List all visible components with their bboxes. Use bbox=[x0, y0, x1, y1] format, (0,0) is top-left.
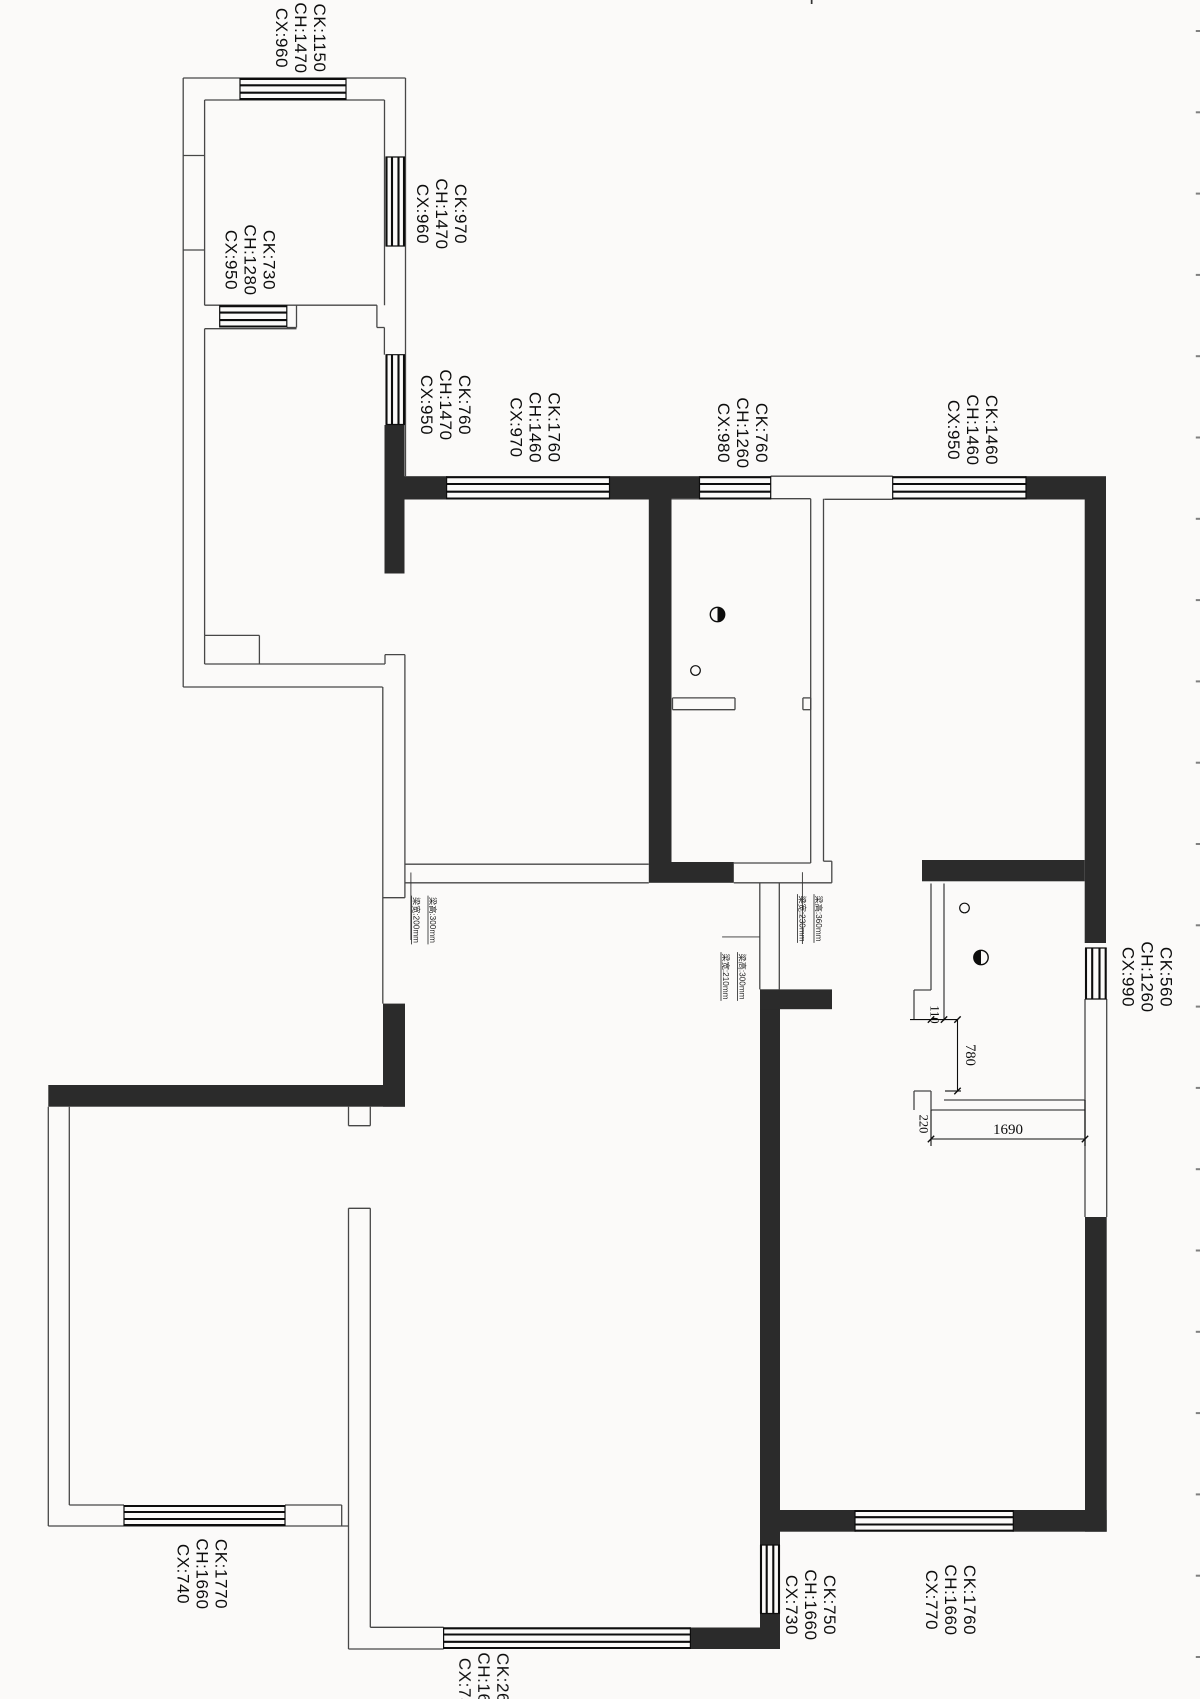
svg-text:CX:770: CX:770 bbox=[922, 1570, 941, 1630]
svg-text:CH:1260: CH:1260 bbox=[1138, 941, 1157, 1012]
svg-text:梁宽:210mm: 梁宽:210mm bbox=[721, 954, 731, 1000]
svg-text:CH:1660: CH:1660 bbox=[474, 1652, 493, 1699]
svg-text:1690: 1690 bbox=[993, 1122, 1023, 1138]
svg-text:CX:950: CX:950 bbox=[417, 375, 436, 435]
svg-text:CX:740: CX:740 bbox=[174, 1544, 193, 1604]
svg-text:CX:980: CX:980 bbox=[714, 403, 733, 463]
svg-text:CH:1260: CH:1260 bbox=[733, 397, 752, 468]
svg-text:CX:950: CX:950 bbox=[222, 230, 241, 290]
svg-text:CK:1760: CK:1760 bbox=[545, 392, 564, 462]
svg-text:CK:970: CK:970 bbox=[451, 184, 470, 244]
svg-text:CK:560: CK:560 bbox=[1157, 947, 1176, 1007]
svg-text:梁宽:230mm: 梁宽:230mm bbox=[798, 896, 808, 942]
svg-text:CX:730: CX:730 bbox=[782, 1575, 801, 1635]
svg-text:CX:950: CX:950 bbox=[944, 400, 963, 460]
svg-text:CK:760: CK:760 bbox=[752, 403, 771, 463]
svg-text:220: 220 bbox=[917, 1115, 931, 1134]
svg-text:CH:1470: CH:1470 bbox=[291, 2, 310, 73]
svg-text:780: 780 bbox=[962, 1044, 978, 1066]
svg-text:CH:1660: CH:1660 bbox=[941, 1564, 960, 1635]
svg-text:CK:750: CK:750 bbox=[820, 1575, 839, 1635]
svg-text:CK:730: CK:730 bbox=[260, 230, 279, 290]
svg-text:CH:1460: CH:1460 bbox=[963, 394, 982, 465]
svg-text:CK:1770: CK:1770 bbox=[212, 1539, 231, 1609]
svg-text:CX:990: CX:990 bbox=[1119, 947, 1138, 1007]
svg-text:CH:1460: CH:1460 bbox=[526, 392, 545, 463]
svg-text:梁高:300mm: 梁高:300mm bbox=[428, 897, 438, 943]
svg-text:CX:960: CX:960 bbox=[413, 184, 432, 244]
svg-text:CH:1470: CH:1470 bbox=[436, 369, 455, 440]
svg-text:CK:1150: CK:1150 bbox=[310, 3, 329, 72]
svg-text:110: 110 bbox=[928, 1005, 942, 1023]
svg-text:梁高:360mm: 梁高:360mm bbox=[814, 896, 824, 942]
svg-text:CH:1470: CH:1470 bbox=[432, 178, 451, 249]
svg-text:CX:960: CX:960 bbox=[272, 8, 291, 68]
svg-text:CH:1660: CH:1660 bbox=[801, 1569, 820, 1640]
svg-text:CX:970: CX:970 bbox=[507, 397, 526, 457]
svg-text:CH:1280: CH:1280 bbox=[241, 224, 260, 295]
svg-text:梁高:300mm: 梁高:300mm bbox=[738, 954, 748, 1000]
svg-text:CK:760: CK:760 bbox=[455, 375, 474, 435]
svg-text:梁宽:200mm: 梁宽:200mm bbox=[412, 897, 422, 943]
svg-text:CK:2660: CK:2660 bbox=[493, 1653, 512, 1699]
svg-text:CX:730: CX:730 bbox=[455, 1658, 474, 1699]
svg-text:CK:1760: CK:1760 bbox=[960, 1565, 979, 1635]
svg-text:CK:1460: CK:1460 bbox=[982, 395, 1001, 465]
svg-text:CH:1660: CH:1660 bbox=[193, 1538, 212, 1609]
